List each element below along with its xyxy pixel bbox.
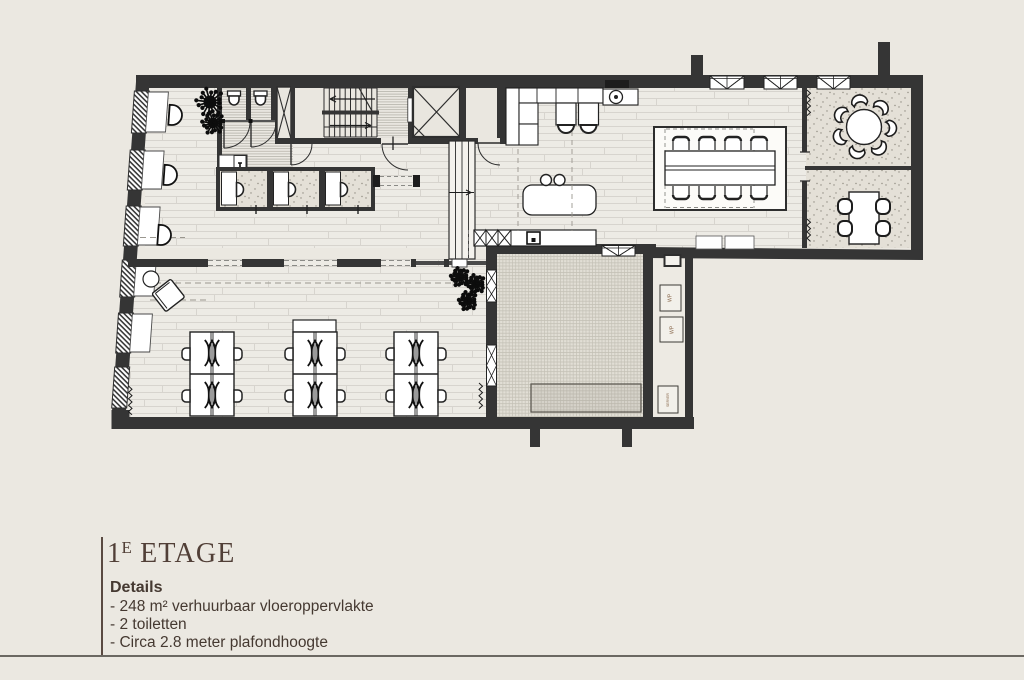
svg-text:WP: WP <box>667 293 673 302</box>
svg-text:Details: Details <box>110 579 163 596</box>
svg-text:SERVER: SERVER <box>666 393 670 407</box>
svg-text:- 248 m² verhuurbaar vloeroppe: - 248 m² verhuurbaar vloeroppervlakte <box>110 598 374 615</box>
svg-text:- Circa 2.8 meter plafondhoogt: - Circa 2.8 meter plafondhoogte <box>110 634 328 651</box>
svg-text:- 2 toiletten: - 2 toiletten <box>110 616 187 633</box>
svg-text:WP: WP <box>669 325 675 334</box>
